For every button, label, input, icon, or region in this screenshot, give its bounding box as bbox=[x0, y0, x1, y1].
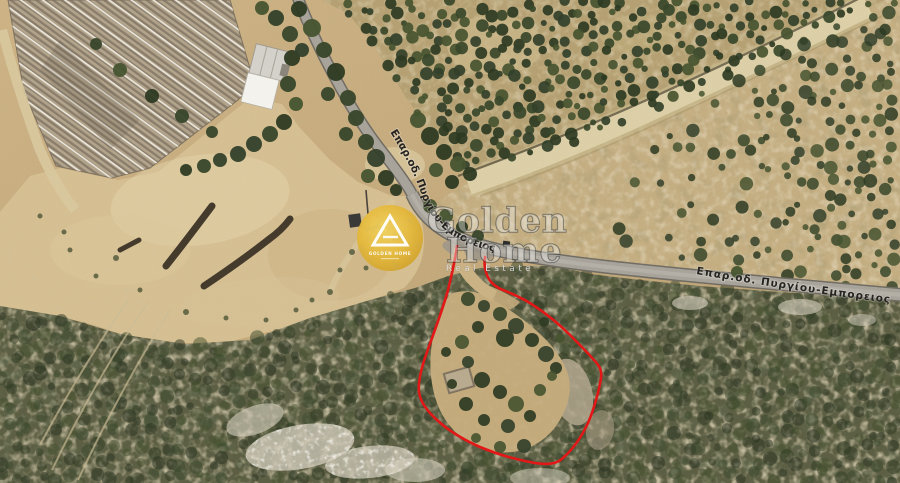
satellite-map-image[interactable]: Επαρ.οδ. Πυργίου-Εμπορειος Επαρ.οδ. Πυργ… bbox=[0, 0, 900, 483]
watermark: GOLDEN HOME Golden Home Real Estate bbox=[357, 201, 568, 274]
watermark-tagline: Real Estate bbox=[446, 264, 534, 274]
map-canvas: Επαρ.οδ. Πυργίου-Εμπορειος Επαρ.οδ. Πυργ… bbox=[0, 0, 900, 483]
logo-caption: GOLDEN HOME bbox=[369, 251, 412, 257]
